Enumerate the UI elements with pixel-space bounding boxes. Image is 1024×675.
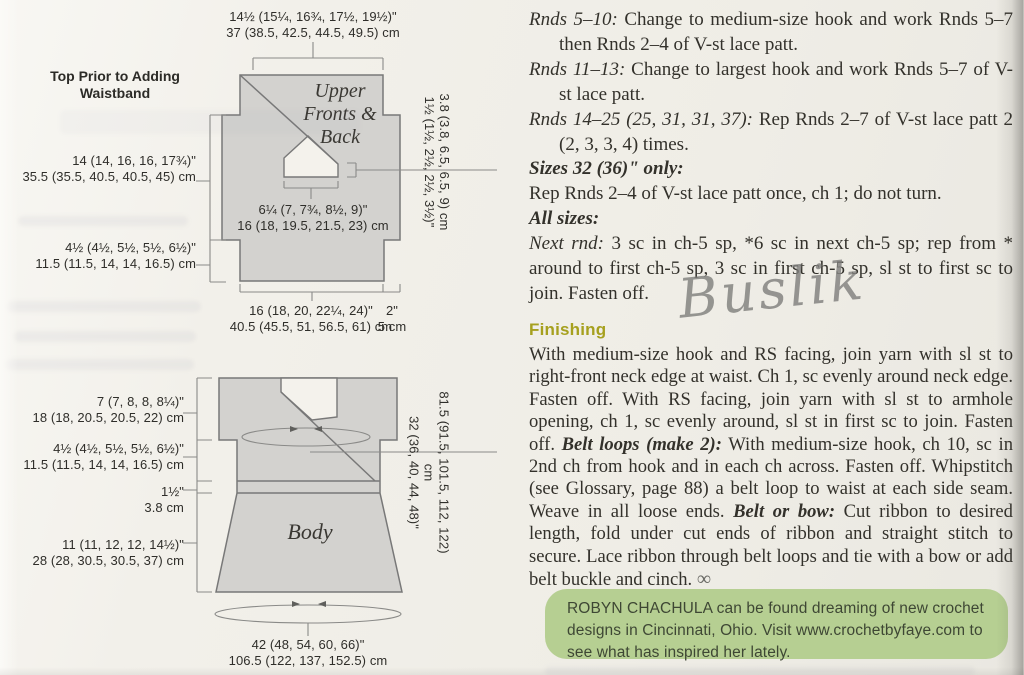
bleedthrough-smudge <box>4 359 194 370</box>
body-piece-shape <box>216 378 402 592</box>
waistband-measurement: 1½" 3.8 cm <box>0 484 184 516</box>
bleedthrough-smudge <box>14 331 196 342</box>
bleedthrough-smudge <box>18 216 188 226</box>
neck-width-measurement: 6¼ (7, 7¾, 8½, 9)" 16 (18, 19.5, 21.5, 2… <box>213 202 413 234</box>
skirt-length-measurement: 11 (11, 12, 12, 14½)" 28 (28, 30.5, 30.5… <box>0 537 184 569</box>
belt-loops-lead: Belt loops (make 2): <box>562 434 722 455</box>
belt-or-bow-lead: Belt or bow: <box>733 501 835 522</box>
end-of-pattern-mark: ∞ <box>697 568 710 590</box>
finishing-paragraph: With medium-size hook and RS facing, joi… <box>529 344 1013 591</box>
rnds-5-10-paragraph: Rnds 5–10: Change to medium-size hook an… <box>529 8 1013 58</box>
neck-depth-measurement: 3.8 (3.8, 6.5, 6.5, 9) cm 1½ (1½, 2½, 2½… <box>422 76 452 248</box>
bust-circumference-measurement: 81.5 (91.5, 101.5, 112, 122) cm 32 (36, … <box>407 382 452 564</box>
upper-side-measurement: 14 (14, 16, 16, 17¾)" 35.5 (35.5, 40.5, … <box>0 153 196 185</box>
bleedthrough-smudge <box>6 301 201 312</box>
body-underarm-measurement: 4½ (4½, 5½, 5½, 6½)" 11.5 (11.5, 14, 14,… <box>0 441 184 473</box>
all-sizes-heading: All sizes: <box>529 207 1013 232</box>
scan-edge-bottom <box>0 667 1024 675</box>
scanned-pattern-page: Top Prior to Adding Waistband Upper Fron… <box>0 0 1024 675</box>
rnds-5-10-lead: Rnds 5–10: <box>529 9 618 30</box>
upper-lower-side-measurement: 4½ (4½, 5½, 5½, 6½)" 11.5 (11.5, 14, 14,… <box>0 240 196 272</box>
hem-circumference-measurement: 42 (48, 54, 60, 66)" 106.5 (122, 137, 15… <box>208 637 408 669</box>
rnds-11-13-text: Change to largest hook and work Rnds 5–7… <box>559 59 1013 105</box>
rnds-14-25-paragraph: Rnds 14–25 (25, 31, 31, 37): Rep Rnds 2–… <box>529 108 1013 158</box>
rnds-11-13-lead: Rnds 11–13: <box>529 59 625 80</box>
rnds-14-25-lead: Rnds 14–25 (25, 31, 31, 37): <box>529 109 753 130</box>
rnds-5-10-text: Change to medium-size hook and work Rnds… <box>559 9 1013 55</box>
sizes-32-36-text: Rep Rnds 2–4 of V-st lace patt once, ch … <box>529 182 1013 207</box>
body-yoke-measurement: 7 (7, 8, 8, 8¼)" 18 (18, 20.5, 20.5, 22)… <box>0 394 184 426</box>
bleedthrough-smudge <box>60 110 360 134</box>
upper-top-measurement: 14½ (15¼, 16¾, 17½, 19½)" 37 (38.5, 42.5… <box>213 9 413 41</box>
finishing-heading: Finishing <box>529 320 1013 340</box>
rnds-11-13-paragraph: Rnds 11–13: Change to largest hook and w… <box>529 58 1013 108</box>
body-piece-label: Body <box>270 519 350 545</box>
scan-edge-left <box>0 0 18 675</box>
next-rnd-lead: Next rnd: <box>529 233 604 254</box>
sizes-32-36-heading: Sizes 32 (36)" only: <box>529 157 1013 182</box>
designer-name: ROBYN CHACHULA <box>567 600 712 617</box>
diagram-title: Top Prior to Adding Waistband <box>40 68 190 102</box>
page-gutter-shadow <box>996 0 1024 675</box>
upper-step-measurement: 2" 5 cm <box>362 303 422 335</box>
designer-bio-box: ROBYN CHACHULA can be found dreaming of … <box>545 589 1008 659</box>
